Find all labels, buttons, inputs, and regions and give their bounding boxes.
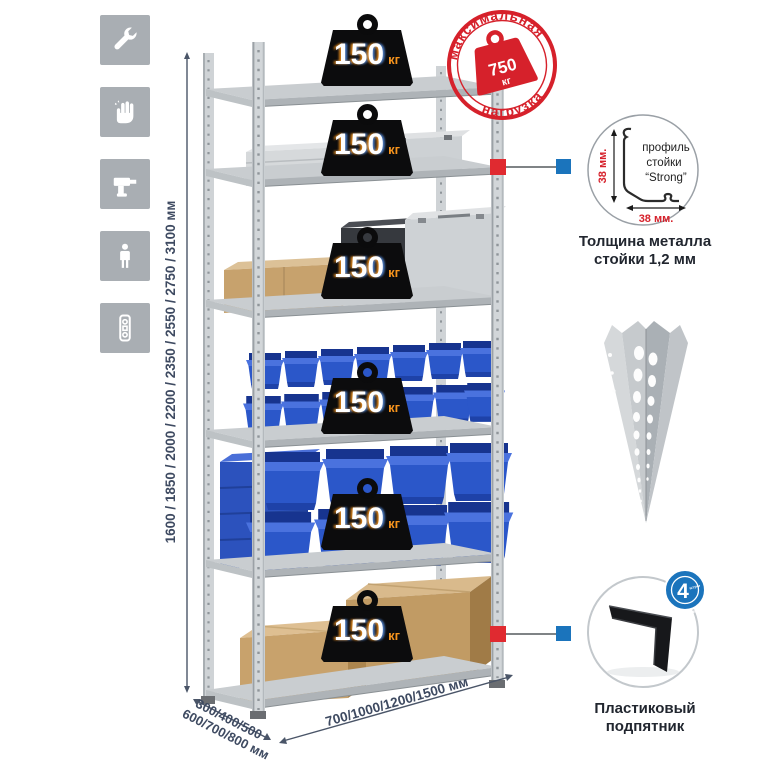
plastic-foot-detail: 4 штуки в комплекте: [584, 566, 720, 698]
max-load-stamp: максимальная нагрузка 750 кг: [437, 0, 567, 130]
plastic-foot-front-left: [250, 711, 266, 719]
load-unit: кг: [388, 516, 400, 531]
shelf-load-weight-1: 150кг: [321, 14, 413, 86]
marker-red-top: [490, 159, 506, 175]
load-value: 150: [334, 130, 384, 160]
profile-dim-vertical: 38 мм.: [597, 149, 609, 184]
load-unit: кг: [388, 400, 400, 415]
shelf-load-weight-6: 150кг: [321, 590, 413, 662]
marker-red-bottom: [490, 626, 506, 642]
profile-label-2: стойки: [646, 157, 681, 169]
marker-blue-top: [556, 159, 571, 174]
callout-bottom: [490, 626, 571, 642]
plastic-foot-front-right: [489, 680, 505, 688]
weight-handle: [357, 14, 378, 35]
load-value: 150: [334, 616, 384, 646]
weight-handle: [357, 227, 378, 248]
badge-count: 4: [677, 580, 689, 603]
weight-handle: [357, 362, 378, 383]
load-value: 150: [334, 40, 384, 70]
profile-dim-horizontal: 38 мм.: [639, 213, 674, 225]
callout-top: [490, 159, 571, 175]
load-unit: кг: [388, 265, 400, 280]
load-unit: кг: [388, 628, 400, 643]
load-unit: кг: [388, 52, 400, 67]
post-profile-detail: 38 мм. 38 мм. профиль стойки “Strong”: [584, 111, 702, 229]
shelf-load-weight-3: 150кг: [321, 227, 413, 299]
marker-blue-bottom: [556, 626, 571, 641]
shelf-load-weight-5: 150кг: [321, 478, 413, 550]
weight-handle: [357, 104, 378, 125]
load-value: 150: [334, 388, 384, 418]
weight-handle: [357, 590, 378, 611]
shelf-load-weight-4: 150кг: [321, 362, 413, 434]
weight-handle: [357, 478, 378, 499]
product-infographic: 1600 / 1850 / 2000 / 2200 / 2350 / 2550 …: [0, 0, 765, 765]
profile-label-1: профиль: [642, 142, 690, 154]
load-unit: кг: [388, 142, 400, 157]
height-dimension: 1600 / 1850 / 2000 / 2200 / 2350 / 2550 …: [163, 52, 190, 693]
angle-post-image: [598, 313, 694, 527]
load-value: 150: [334, 504, 384, 534]
load-value: 150: [334, 253, 384, 283]
height-dimension-label: 1600 / 1850 / 2000 / 2200 / 2350 / 2550 …: [163, 201, 178, 544]
profile-label-3: “Strong”: [645, 172, 687, 184]
shelf-load-weight-2: 150кг: [321, 104, 413, 176]
